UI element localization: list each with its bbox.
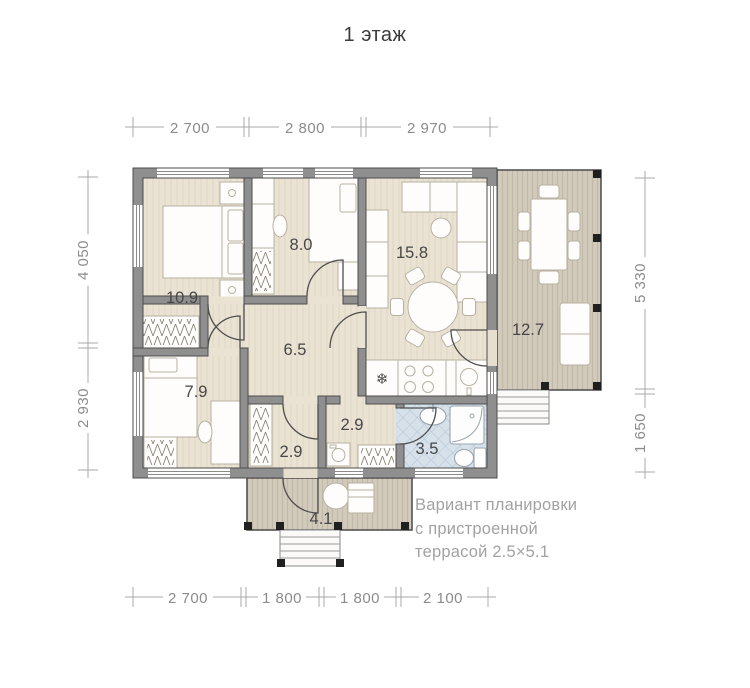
dimension-left: 4 050 2 930 xyxy=(75,170,98,478)
dim-label: 5 330 xyxy=(632,263,649,303)
chair xyxy=(273,215,287,237)
annotation-line: Вариант планировки xyxy=(415,494,577,518)
dining-chair xyxy=(391,299,404,316)
wall xyxy=(366,396,487,404)
dim-label: 2 800 xyxy=(285,120,325,137)
desk xyxy=(252,204,274,248)
dimension-right: 5 330 1 650 xyxy=(632,171,655,479)
terrace-chair xyxy=(568,241,580,260)
chair xyxy=(198,421,212,443)
dimension-bottom: 2 700 1 800 1 800 2 100 xyxy=(125,587,496,607)
porch-steps xyxy=(280,530,340,566)
washing-machine-icon xyxy=(327,443,350,466)
window xyxy=(315,169,353,178)
terrace-chair xyxy=(539,185,559,198)
terrace-chair xyxy=(539,271,559,284)
dining-table xyxy=(408,282,458,332)
window xyxy=(148,469,230,478)
window xyxy=(488,372,497,394)
floor-plan: ❄ xyxy=(0,0,750,688)
wall xyxy=(343,296,358,304)
window xyxy=(263,169,303,178)
room-area-label: 10.9 xyxy=(166,289,198,307)
room-area-label: 8.0 xyxy=(290,236,313,254)
wardrobe xyxy=(250,248,274,294)
wall xyxy=(318,396,326,468)
pillow xyxy=(340,184,356,212)
wall xyxy=(326,396,340,404)
pillow xyxy=(149,358,177,372)
dim-label: 4 050 xyxy=(75,240,92,280)
window xyxy=(415,469,463,478)
wall xyxy=(200,296,208,356)
toilet xyxy=(455,448,487,468)
room-area-label: 3.5 xyxy=(416,440,439,458)
dim-label: 1 650 xyxy=(632,413,649,453)
room-area-label: 2.9 xyxy=(280,443,303,461)
dim-label: 2 970 xyxy=(407,120,447,137)
wall xyxy=(396,444,404,468)
page-title: 1 этаж xyxy=(0,24,750,47)
wall xyxy=(240,348,248,468)
dim-label: 2 100 xyxy=(423,590,463,607)
dim-label: 1 800 xyxy=(262,590,302,607)
window xyxy=(420,169,472,178)
room-area-label: 4.1 xyxy=(310,510,333,528)
room-area-label: 6.5 xyxy=(284,341,307,359)
room-area-label: 12.7 xyxy=(512,321,544,339)
fridge-icon: ❄ xyxy=(376,371,389,388)
dimension-top: 2 700 2 800 2 970 xyxy=(125,117,498,137)
nightstand xyxy=(220,182,244,204)
wall xyxy=(358,178,366,306)
dim-label: 2 930 xyxy=(75,388,92,428)
shelf xyxy=(252,178,274,204)
terrace-chair xyxy=(568,212,580,231)
porch-bench xyxy=(348,483,374,513)
wall xyxy=(244,178,252,298)
wardrobe xyxy=(358,445,397,468)
window xyxy=(488,186,497,274)
annotation-line: с пристроенной xyxy=(415,518,577,542)
desk xyxy=(211,401,241,464)
corridor-wardrobe xyxy=(250,404,272,466)
terrace-chair xyxy=(518,212,530,231)
shower xyxy=(450,406,484,444)
laundry-furniture xyxy=(327,443,397,468)
dim-label: 1 800 xyxy=(340,590,380,607)
room-area-label: 7.9 xyxy=(185,383,208,401)
terrace-chair xyxy=(518,241,530,260)
floor-plan-page: ❄ xyxy=(0,0,750,688)
bathroom-door-threshold xyxy=(396,408,404,444)
room-area-label: 2.9 xyxy=(341,416,364,434)
wardrobe xyxy=(136,316,199,348)
nightstand xyxy=(338,262,358,290)
terrace-table xyxy=(531,199,567,270)
wall xyxy=(248,396,283,404)
pillow xyxy=(228,243,243,274)
window xyxy=(134,205,143,267)
window xyxy=(335,469,363,478)
window xyxy=(157,169,229,178)
dim-label: 2 700 xyxy=(168,590,208,607)
terrace-steps xyxy=(497,390,549,424)
wall xyxy=(358,348,366,396)
tall-cabinet xyxy=(366,210,388,308)
wardrobe xyxy=(144,437,177,468)
kitchen-counter: ❄ xyxy=(366,360,487,396)
window xyxy=(134,372,143,436)
wall xyxy=(133,348,208,356)
coffee-table xyxy=(431,218,451,238)
annotation-line: террасой 2.5×5.1 xyxy=(415,541,577,565)
dim-label: 2 700 xyxy=(170,120,210,137)
room-area-label: 15.8 xyxy=(396,244,428,262)
wall xyxy=(244,296,307,304)
porch-table xyxy=(323,483,349,509)
pillow xyxy=(228,210,243,241)
dining-chair xyxy=(463,299,476,316)
plan-annotation: Вариант планировки с пристроенной террас… xyxy=(415,494,577,565)
